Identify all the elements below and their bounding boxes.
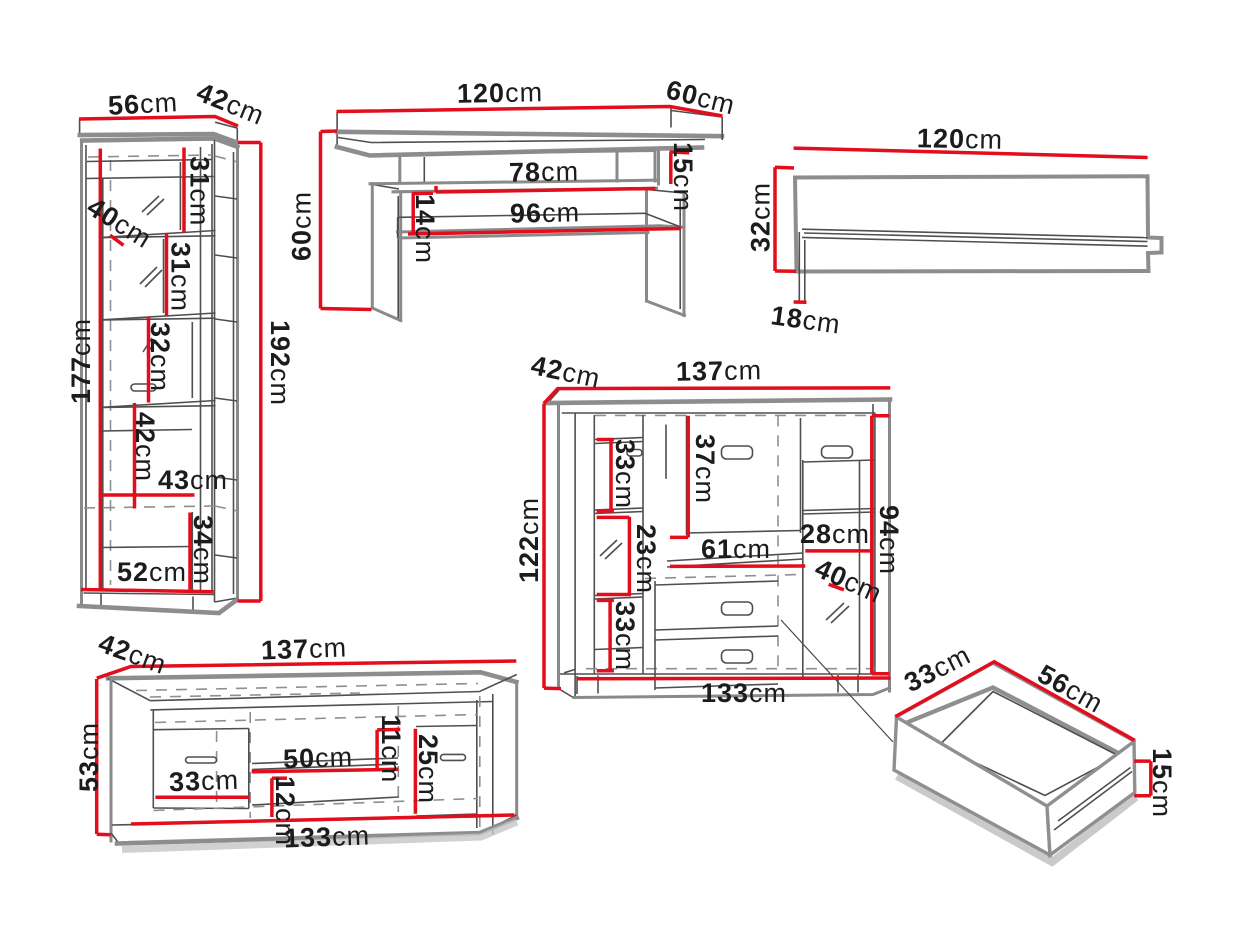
- svg-text:37cm: 37cm: [690, 434, 720, 504]
- svg-text:43cm: 43cm: [158, 465, 228, 495]
- svg-text:15cm: 15cm: [1147, 748, 1177, 818]
- svg-text:96cm: 96cm: [510, 197, 581, 228]
- svg-text:137cm: 137cm: [676, 355, 763, 386]
- svg-text:133cm: 133cm: [701, 678, 787, 708]
- svg-text:120cm: 120cm: [457, 77, 544, 108]
- svg-text:34cm: 34cm: [188, 515, 218, 585]
- svg-text:23cm: 23cm: [631, 524, 661, 594]
- svg-text:32cm: 32cm: [145, 322, 175, 392]
- svg-text:120cm: 120cm: [917, 123, 1004, 154]
- svg-text:61cm: 61cm: [701, 534, 771, 564]
- svg-text:33cm: 33cm: [610, 439, 640, 509]
- svg-text:15cm: 15cm: [668, 142, 698, 212]
- svg-text:33cm: 33cm: [169, 765, 240, 797]
- svg-text:192cm: 192cm: [265, 320, 295, 406]
- svg-text:56cm: 56cm: [107, 87, 179, 121]
- svg-text:31cm: 31cm: [166, 242, 196, 312]
- svg-text:94cm: 94cm: [874, 505, 904, 575]
- svg-text:78cm: 78cm: [509, 156, 580, 187]
- svg-text:32cm: 32cm: [746, 182, 776, 252]
- svg-text:11cm: 11cm: [376, 715, 406, 784]
- svg-text:14cm: 14cm: [410, 194, 440, 264]
- svg-text:33cm: 33cm: [610, 601, 640, 671]
- svg-text:53cm: 53cm: [74, 722, 104, 792]
- svg-text:52cm: 52cm: [117, 557, 187, 587]
- svg-text:25cm: 25cm: [413, 734, 443, 804]
- svg-text:42cm: 42cm: [130, 412, 160, 482]
- svg-text:133cm: 133cm: [284, 821, 371, 854]
- svg-text:60cm: 60cm: [287, 191, 317, 261]
- svg-text:137cm: 137cm: [261, 633, 348, 666]
- svg-text:122cm: 122cm: [514, 497, 544, 583]
- svg-text:50cm: 50cm: [283, 742, 354, 774]
- svg-text:177cm: 177cm: [66, 318, 96, 404]
- svg-text:31cm: 31cm: [185, 156, 215, 226]
- svg-text:28cm: 28cm: [800, 519, 870, 549]
